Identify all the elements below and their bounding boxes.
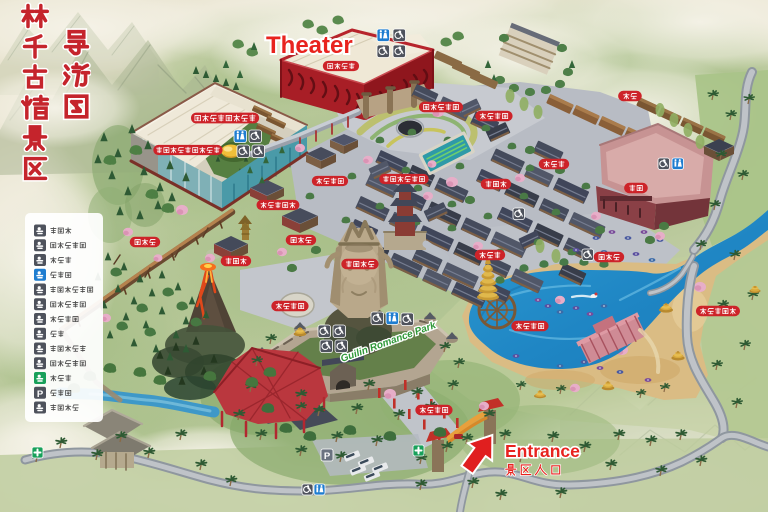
svg-text:Theater: Theater xyxy=(266,32,353,59)
svg-text:P: P xyxy=(37,389,44,400)
svg-text:P: P xyxy=(324,451,331,462)
svg-text:Entrance: Entrance xyxy=(505,441,580,461)
